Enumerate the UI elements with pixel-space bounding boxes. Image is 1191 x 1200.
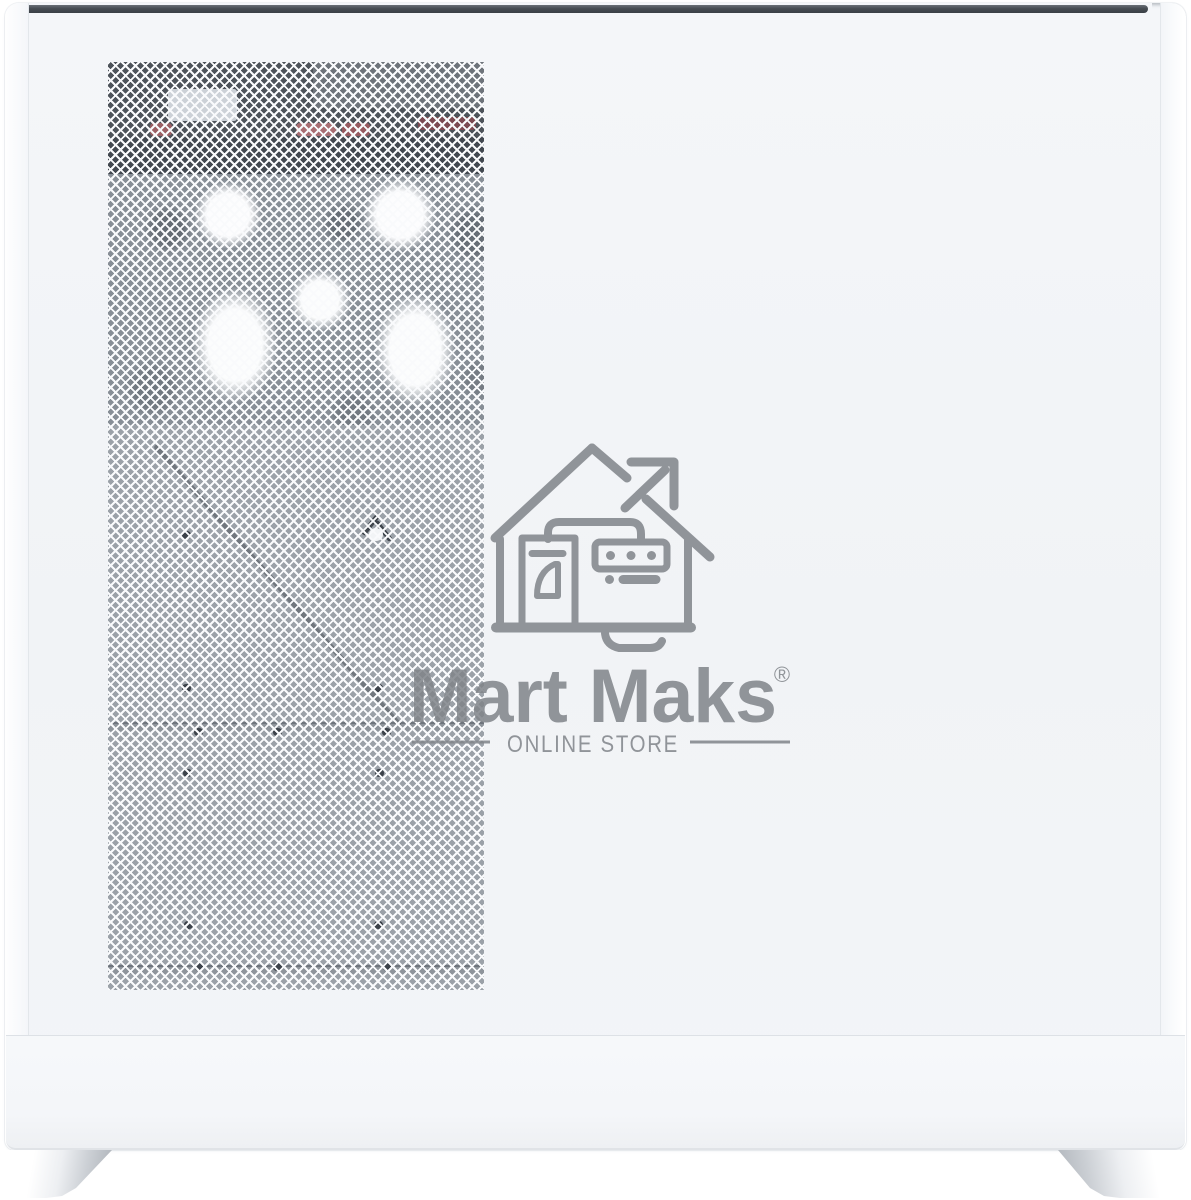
brand-wordmark: Mart Maks	[409, 654, 777, 739]
top-trim-strip	[21, 5, 1148, 13]
watermark-logo-svg: Mart Maks ® ONLINE STORE	[353, 430, 833, 770]
store-watermark: Mart Maks ® ONLINE STORE	[353, 430, 833, 770]
case-bottom-band	[6, 1036, 1185, 1150]
house-arrow-storefront-icon	[495, 448, 710, 648]
case-left-edge	[5, 3, 29, 1150]
case-foot-right	[1058, 1150, 1186, 1198]
registered-trademark-symbol: ®	[774, 662, 790, 687]
product-photo: Mart Maks ® ONLINE STORE	[0, 0, 1191, 1200]
case-foot-left	[6, 1150, 112, 1198]
tagline-text: ONLINE STORE	[507, 731, 679, 758]
case-right-edge	[1160, 3, 1186, 1150]
